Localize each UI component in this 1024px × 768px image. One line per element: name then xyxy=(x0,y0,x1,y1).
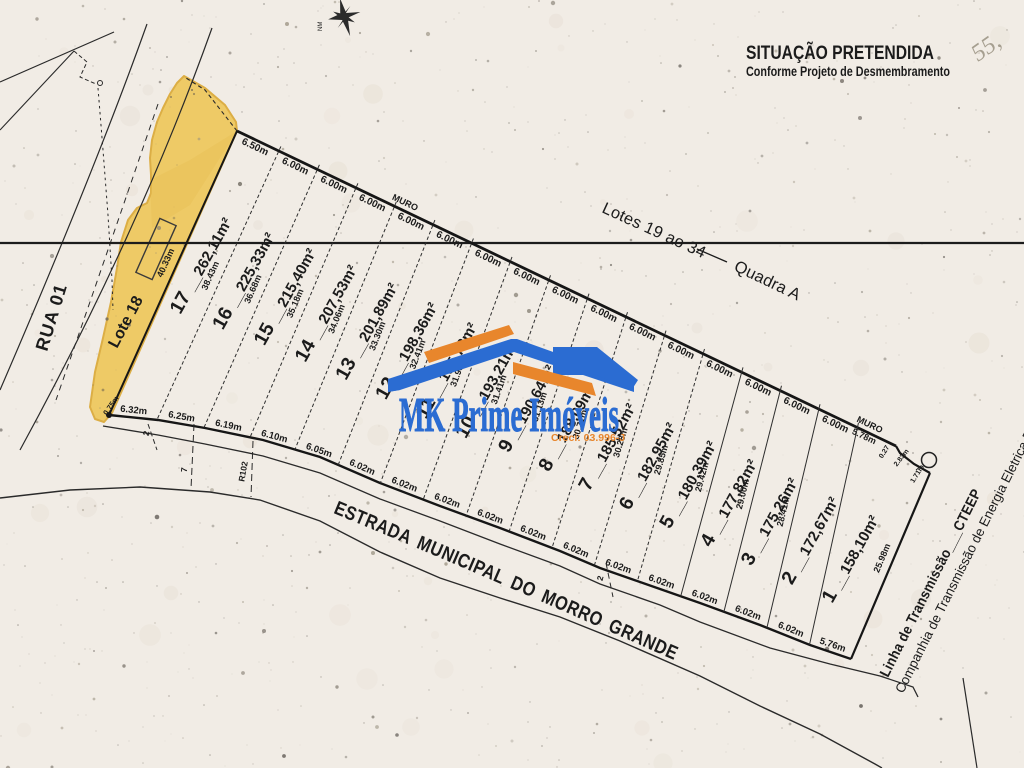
svg-text:SITUAÇÃO PRETENDIDA: SITUAÇÃO PRETENDIDA xyxy=(746,41,934,64)
svg-text:NM: NM xyxy=(318,22,324,31)
svg-text:Conforme Projeto de Desmembram: Conforme Projeto de Desmembramento xyxy=(746,64,950,79)
svg-text:Creci: 03.996-J: Creci: 03.996-J xyxy=(551,432,625,444)
